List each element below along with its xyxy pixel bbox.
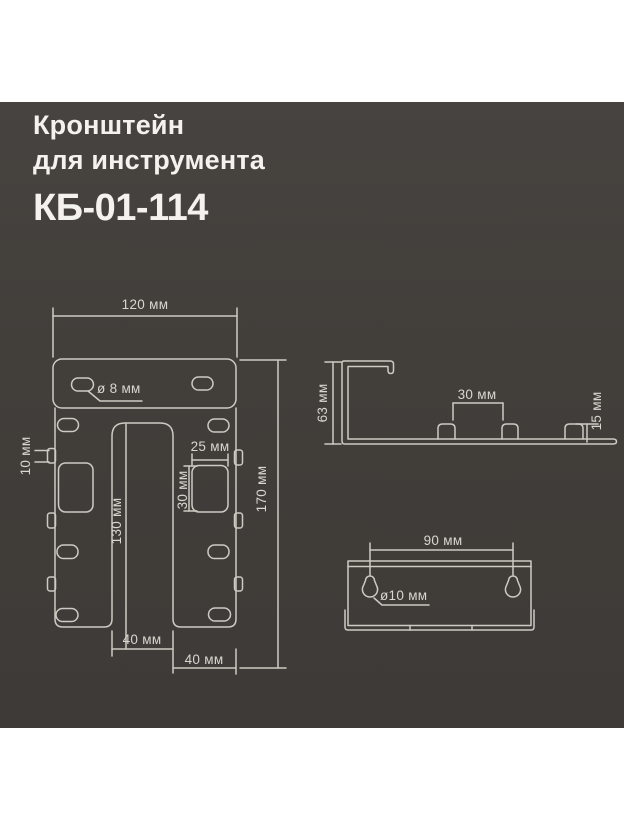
product-card: Кронштейн для инструмента КБ-01-114 [0, 0, 624, 832]
front-slot-hole [56, 609, 78, 622]
front-view-drawing [35, 308, 286, 674]
dim-side-tab-height: 15 мм [590, 387, 604, 435]
side-view-drawing [325, 361, 617, 444]
back-view-drawing [345, 543, 534, 630]
side-bent-tab [502, 424, 518, 439]
dim-front-hole-dia: ø 8 мм [97, 382, 157, 396]
dim-front-slot-height: 30 мм [176, 466, 190, 514]
front-dimension-lines [35, 308, 286, 674]
front-slot-hole [58, 419, 79, 432]
dim-side-height: 63 мм [316, 379, 330, 427]
dim-front-slot-width: 25 мм [180, 440, 240, 454]
dim-front-gap: 40 мм [112, 633, 172, 647]
back-keyhole [505, 576, 520, 597]
front-rect-hole [192, 466, 228, 513]
front-slot-hole [209, 608, 231, 621]
front-slot-hole [57, 545, 78, 559]
side-bent-tab [438, 424, 455, 439]
front-slot-hole [192, 377, 213, 390]
front-slot-hole [208, 419, 229, 432]
front-slot-hole [72, 378, 94, 391]
dim-side-tab-spacing: 30 мм [447, 388, 507, 402]
dim-front-total-height: 170 мм [255, 463, 269, 515]
dim-front-inner-height: 130 мм [110, 495, 124, 547]
front-slot-hole [208, 545, 229, 559]
side-dimension-lines [325, 362, 598, 444]
side-bent-tab [565, 424, 583, 439]
back-keyhole [362, 576, 377, 597]
technical-drawing [0, 0, 624, 832]
dim-front-leg-width: 40 мм [174, 653, 234, 667]
dim-front-width: 120 мм [105, 298, 185, 312]
dim-back-hole-spacing: 90 мм [413, 534, 473, 548]
back-bottom-lip [345, 610, 534, 630]
dim-back-hole-dia: ø10 мм [380, 589, 440, 603]
front-rect-hole [59, 463, 94, 512]
dim-front-tab-height: 10 мм [19, 432, 33, 480]
